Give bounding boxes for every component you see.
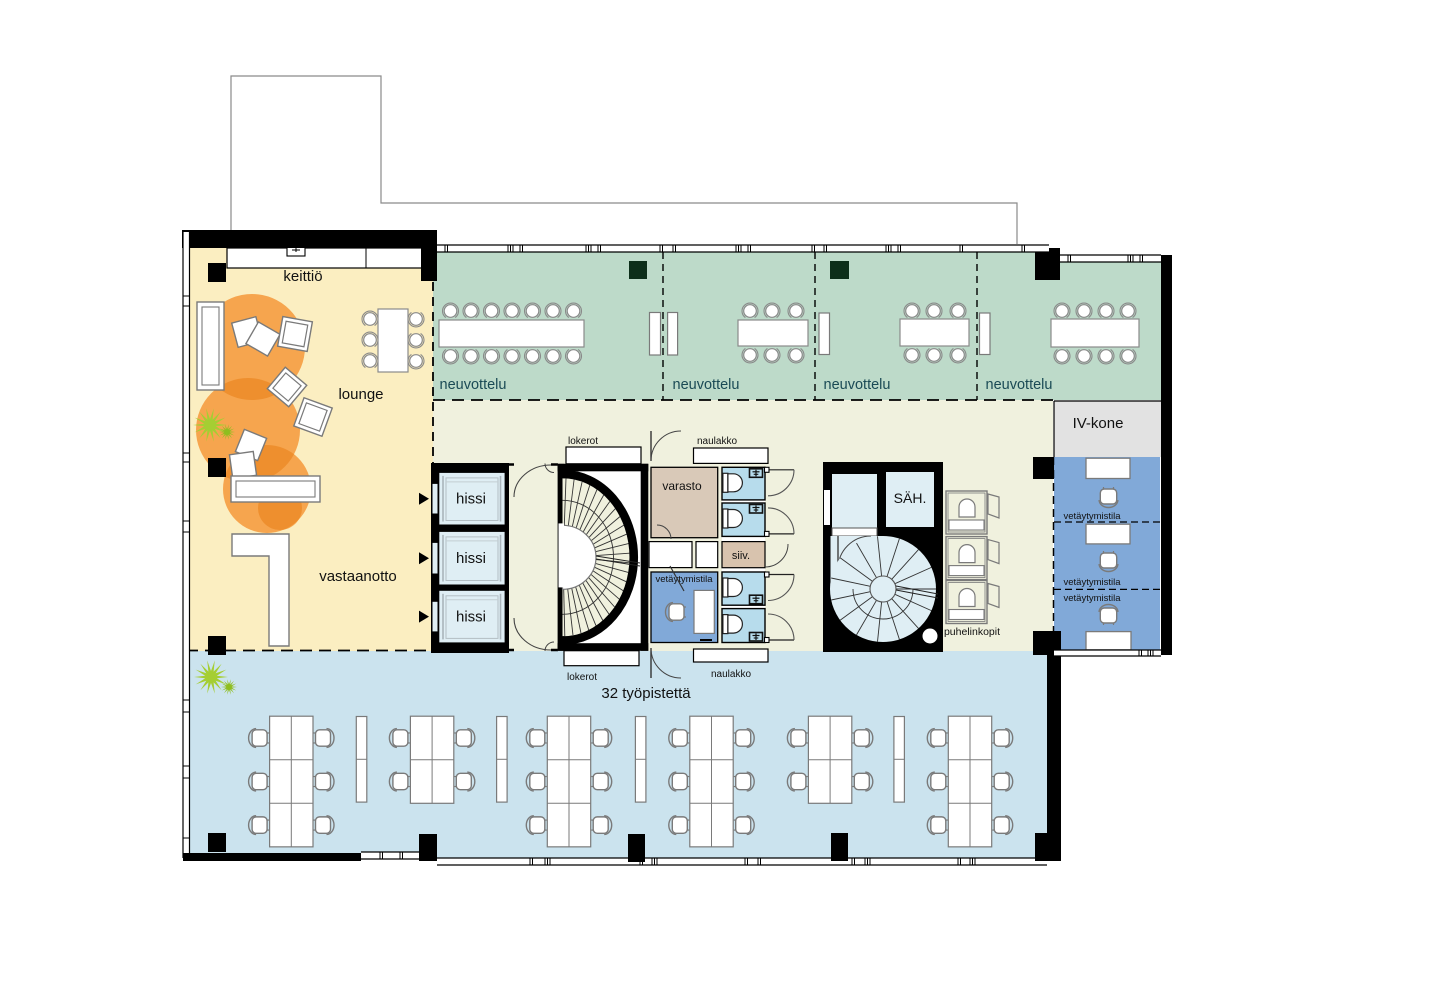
svg-text:neuvottelu: neuvottelu bbox=[986, 377, 1053, 393]
svg-text:IV-kone: IV-kone bbox=[1073, 415, 1124, 432]
svg-text:vetäytymistila: vetäytymistila bbox=[1063, 577, 1121, 588]
svg-text:hissi: hissi bbox=[456, 609, 486, 626]
svg-text:lounge: lounge bbox=[338, 386, 383, 403]
svg-text:32 työpistettä: 32 työpistettä bbox=[601, 685, 691, 702]
svg-text:vetäytymistila: vetäytymistila bbox=[1063, 593, 1121, 604]
svg-text:SÄH.: SÄH. bbox=[894, 490, 927, 506]
svg-text:lokerot: lokerot bbox=[568, 436, 598, 447]
svg-text:hissi: hissi bbox=[456, 550, 486, 567]
svg-text:keittiö: keittiö bbox=[283, 268, 322, 285]
svg-text:varasto: varasto bbox=[662, 479, 702, 493]
svg-text:hissi: hissi bbox=[456, 491, 486, 508]
svg-text:lokerot: lokerot bbox=[567, 672, 597, 683]
svg-text:puhelinkopit: puhelinkopit bbox=[944, 626, 1000, 638]
svg-text:vetäytymistila: vetäytymistila bbox=[1063, 511, 1121, 522]
svg-text:neuvottelu: neuvottelu bbox=[440, 377, 507, 393]
svg-text:naulakko: naulakko bbox=[711, 669, 751, 680]
svg-text:neuvottelu: neuvottelu bbox=[824, 377, 891, 393]
svg-text:siiv.: siiv. bbox=[732, 550, 750, 562]
svg-text:neuvottelu: neuvottelu bbox=[673, 377, 740, 393]
svg-text:naulakko: naulakko bbox=[697, 436, 737, 447]
svg-text:vastaanotto: vastaanotto bbox=[319, 568, 397, 585]
svg-text:vetäytymistila: vetäytymistila bbox=[655, 574, 713, 585]
